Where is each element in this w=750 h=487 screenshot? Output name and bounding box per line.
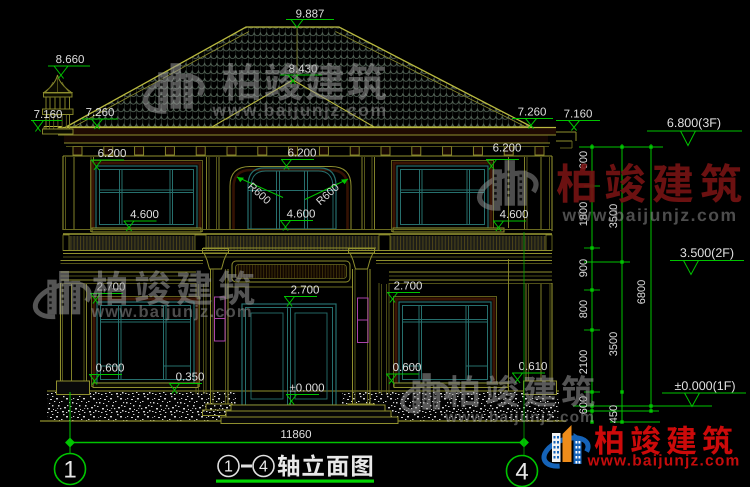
svg-text:11860: 11860	[280, 429, 311, 441]
svg-text:6800: 6800	[636, 280, 648, 304]
svg-text:4: 4	[515, 459, 528, 486]
svg-text:±0.000(1F): ±0.000(1F)	[674, 379, 735, 393]
svg-text:4.600: 4.600	[130, 209, 159, 221]
svg-text:0.600: 0.600	[393, 362, 422, 374]
svg-text:6.200: 6.200	[98, 148, 127, 160]
svg-text:6.200: 6.200	[288, 148, 317, 160]
svg-text:1: 1	[224, 459, 233, 476]
svg-text:9.887: 9.887	[296, 9, 325, 21]
svg-text:7.160: 7.160	[564, 109, 593, 121]
svg-text:www.baijunjz.com: www.baijunjz.com	[561, 205, 737, 225]
svg-text:7.160: 7.160	[34, 109, 63, 121]
svg-text:900: 900	[578, 259, 590, 277]
svg-text:www.baijunjz.com: www.baijunjz.com	[444, 409, 595, 426]
svg-text:8.660: 8.660	[56, 54, 85, 66]
svg-text:0.610: 0.610	[519, 361, 548, 373]
svg-text:1: 1	[63, 457, 76, 484]
svg-text:3.500(2F): 3.500(2F)	[680, 246, 734, 260]
svg-text:4.600: 4.600	[500, 209, 529, 221]
svg-text:3500: 3500	[608, 332, 620, 356]
svg-text:450: 450	[608, 405, 620, 423]
svg-text:7.260: 7.260	[518, 107, 547, 119]
svg-text:2.700: 2.700	[291, 285, 320, 297]
svg-text:7.260: 7.260	[86, 107, 115, 119]
svg-text:4.600: 4.600	[287, 209, 316, 221]
svg-text:www.baijunjz.com: www.baijunjz.com	[211, 100, 387, 120]
svg-text:6.800(3F): 6.800(3F)	[667, 116, 721, 130]
svg-text:4: 4	[259, 459, 268, 476]
svg-text:2.700: 2.700	[394, 281, 423, 293]
svg-text:0.350: 0.350	[176, 372, 205, 384]
svg-text:0.600: 0.600	[96, 363, 125, 375]
svg-text:www.baijunjz.com: www.baijunjz.com	[587, 453, 741, 470]
svg-text:2100: 2100	[578, 350, 590, 374]
svg-text:800: 800	[578, 300, 590, 318]
svg-text:±0.000: ±0.000	[289, 383, 324, 395]
svg-text:www.baijunjz.com: www.baijunjz.com	[90, 303, 253, 321]
svg-text:6.200: 6.200	[493, 143, 522, 155]
